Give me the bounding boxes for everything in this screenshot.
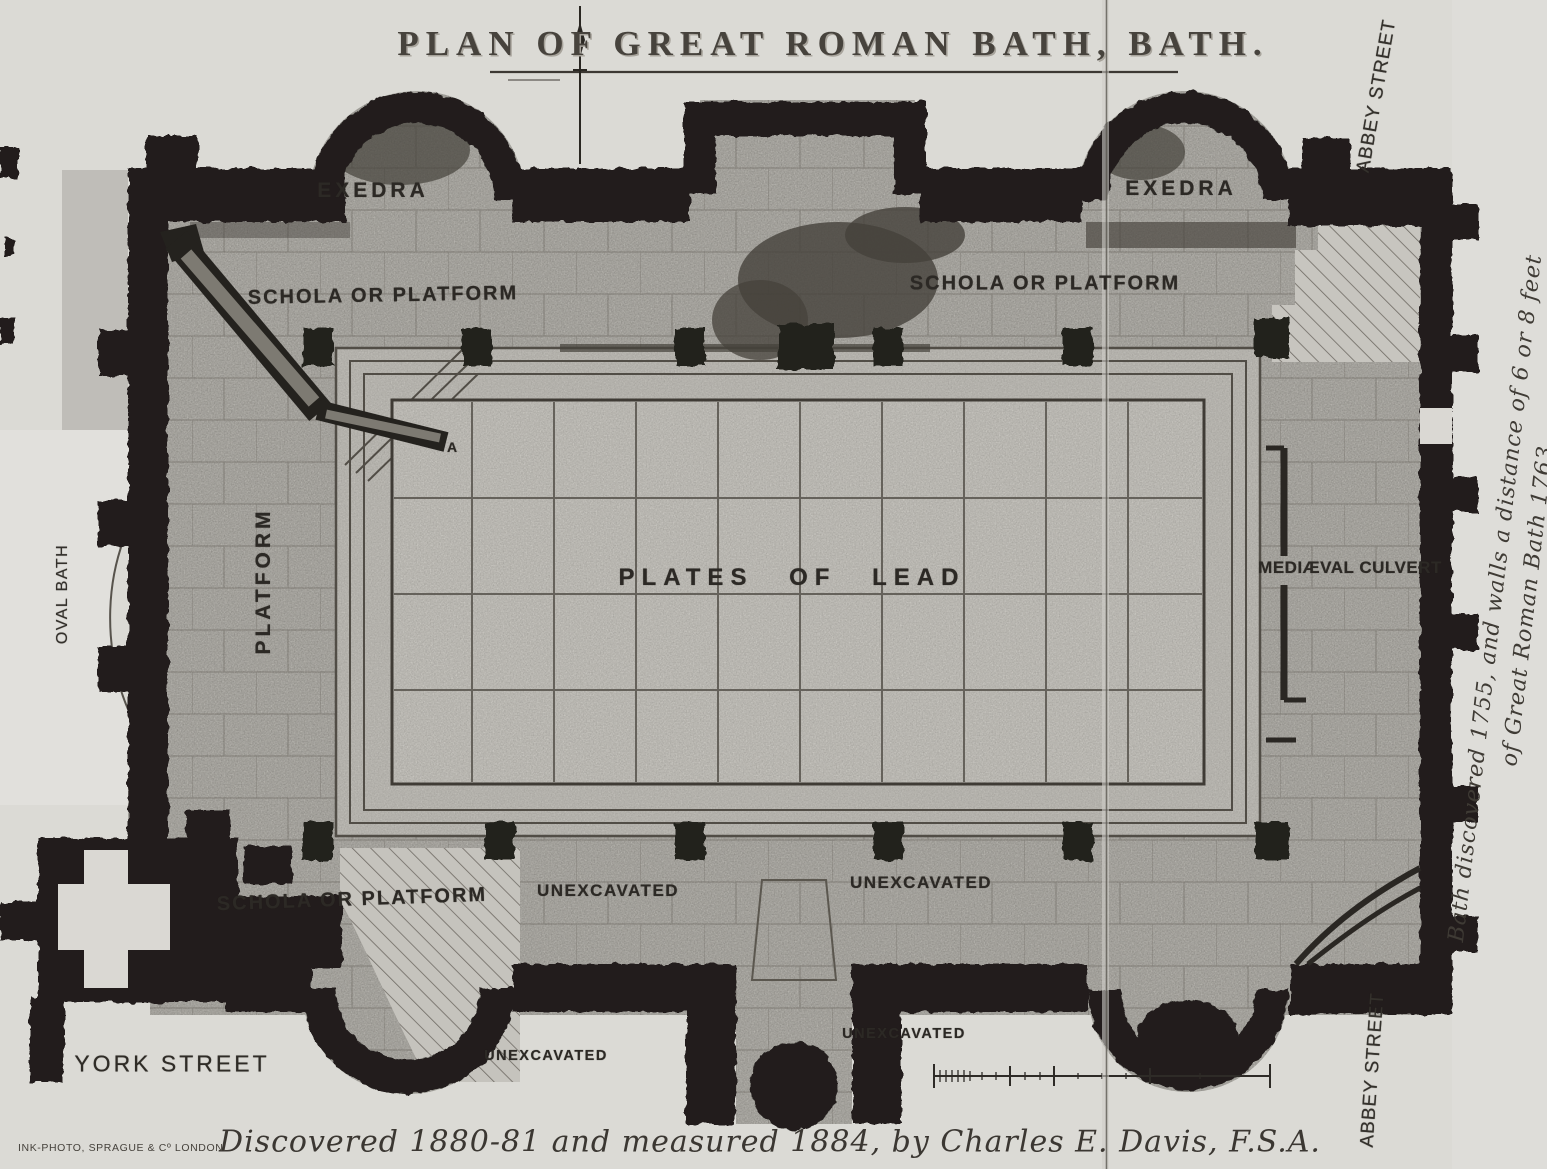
great-bath-pool <box>336 348 1260 836</box>
caption: Discovered 1880-81 and measured 1884, by… <box>219 1125 1321 1160</box>
label-platform: PLATFORM <box>252 507 276 654</box>
page-title: PLAN OF GREAT ROMAN BATH, BATH. <box>397 24 1268 64</box>
label-exedra-left: EXEDRA <box>317 179 429 203</box>
label-schola-top-right: SCHOLA OR PLATFORM <box>910 273 1180 296</box>
label-unexcavated-outer-left: UNEXCAVATED <box>484 1048 608 1064</box>
label-unexcavated-outer-right: UNEXCAVATED <box>842 1026 966 1042</box>
fold-crease <box>1102 0 1109 1169</box>
label-schola-top-left: SCHOLA OR PLATFORM <box>248 282 519 310</box>
printer-credit: INK-PHOTO, SPRAGUE & Cº LONDON. <box>18 1142 227 1154</box>
plan-sheet: PLAN OF GREAT ROMAN BATH, BATH. EXEDRA E… <box>0 0 1547 1169</box>
label-exedra-right: EXEDRA <box>1125 177 1237 201</box>
label-oval-bath: OVAL BATH <box>54 544 72 644</box>
label-unexcavated-inner-left: UNEXCAVATED <box>537 881 679 901</box>
label-york-street: YORK STREET <box>74 1051 269 1078</box>
label-medieval-culvert: MEDIÆVAL CULVERT <box>1258 558 1442 578</box>
label-plates-of-lead: PLATES OF LEAD <box>619 564 966 592</box>
label-unexcavated-inner-right: UNEXCAVATED <box>850 873 992 893</box>
label-point-a: A <box>447 439 457 455</box>
